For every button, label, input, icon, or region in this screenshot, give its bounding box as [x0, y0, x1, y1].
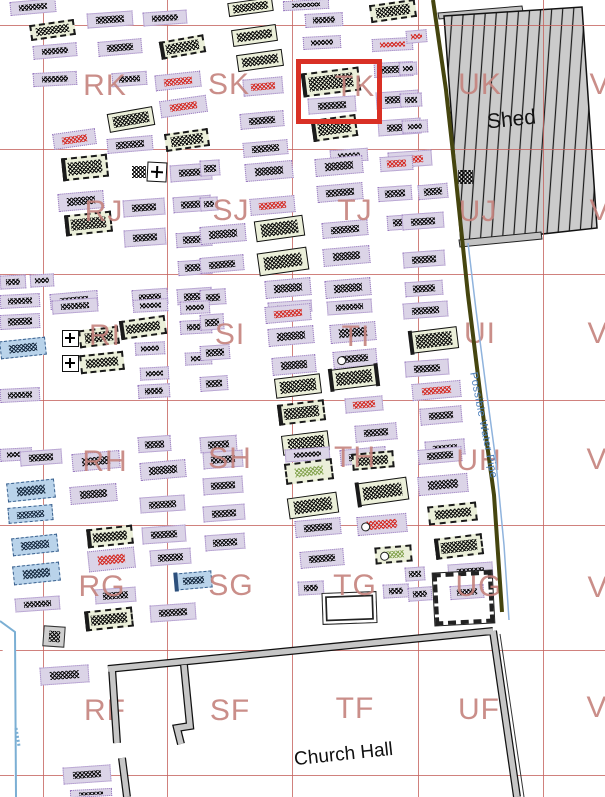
highlight-layer: [0, 0, 605, 797]
selected-plot-highlight-box: [296, 59, 382, 124]
churchyard-plot-map: RKSKTKUKVRJSJTJUJVRISITIUIVRHSHTHUHVRGSG…: [0, 0, 605, 797]
